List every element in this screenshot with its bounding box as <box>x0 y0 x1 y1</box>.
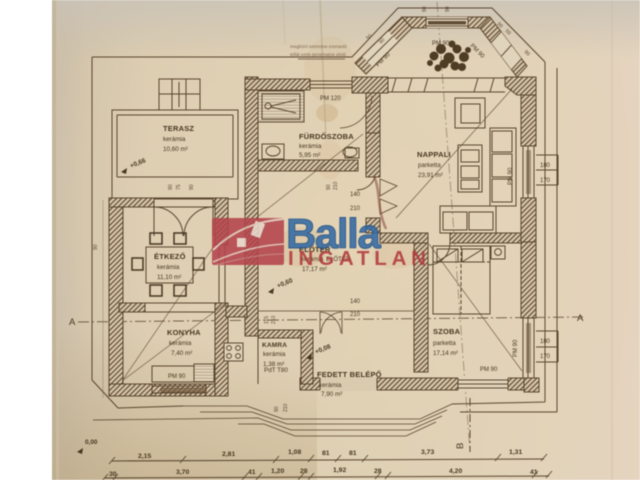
svg-text:INGATLAN: INGATLAN <box>288 247 431 270</box>
